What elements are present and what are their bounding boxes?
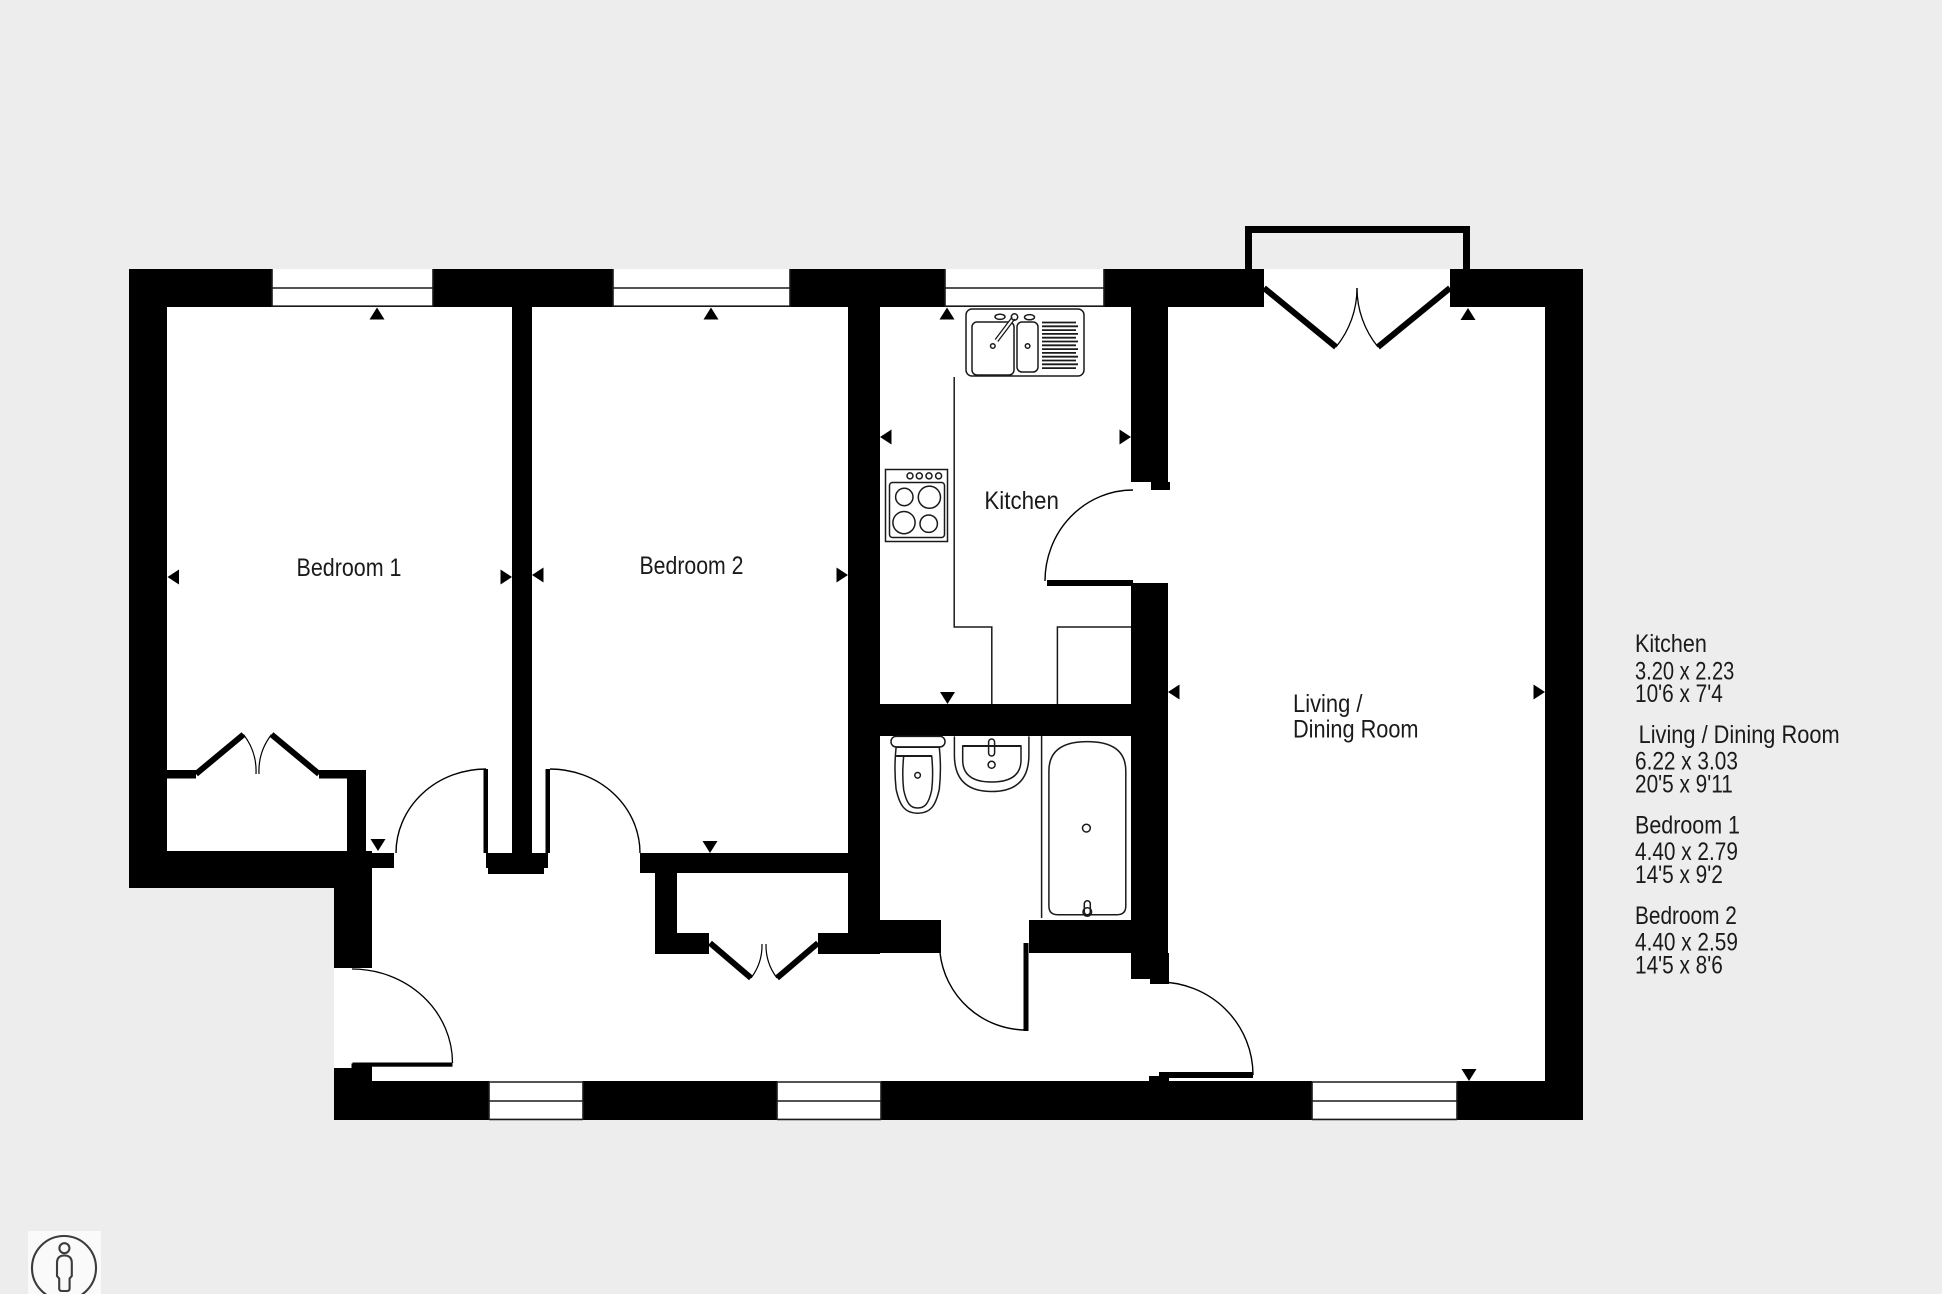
svg-text:14'5 x 9'2: 14'5 x 9'2 bbox=[1635, 861, 1723, 889]
svg-text:Bedroom 2: Bedroom 2 bbox=[640, 552, 744, 580]
svg-text:Bedroom 1: Bedroom 1 bbox=[297, 554, 402, 582]
svg-text:20'5 x 9'11: 20'5 x 9'11 bbox=[1635, 771, 1733, 799]
svg-text:Kitchen: Kitchen bbox=[984, 487, 1059, 515]
svg-text:14'5 x 8'6: 14'5 x 8'6 bbox=[1635, 952, 1723, 980]
svg-text:Living /: Living / bbox=[1293, 690, 1363, 718]
svg-text:10'6 x 7'4: 10'6 x 7'4 bbox=[1635, 680, 1723, 708]
svg-text:Living / Dining Room: Living / Dining Room bbox=[1639, 721, 1840, 749]
svg-text:Kitchen: Kitchen bbox=[1635, 630, 1707, 658]
svg-text:Bedroom 2: Bedroom 2 bbox=[1635, 902, 1737, 930]
svg-text:Bedroom 1: Bedroom 1 bbox=[1635, 812, 1740, 840]
svg-text:Dining Room: Dining Room bbox=[1293, 716, 1419, 744]
